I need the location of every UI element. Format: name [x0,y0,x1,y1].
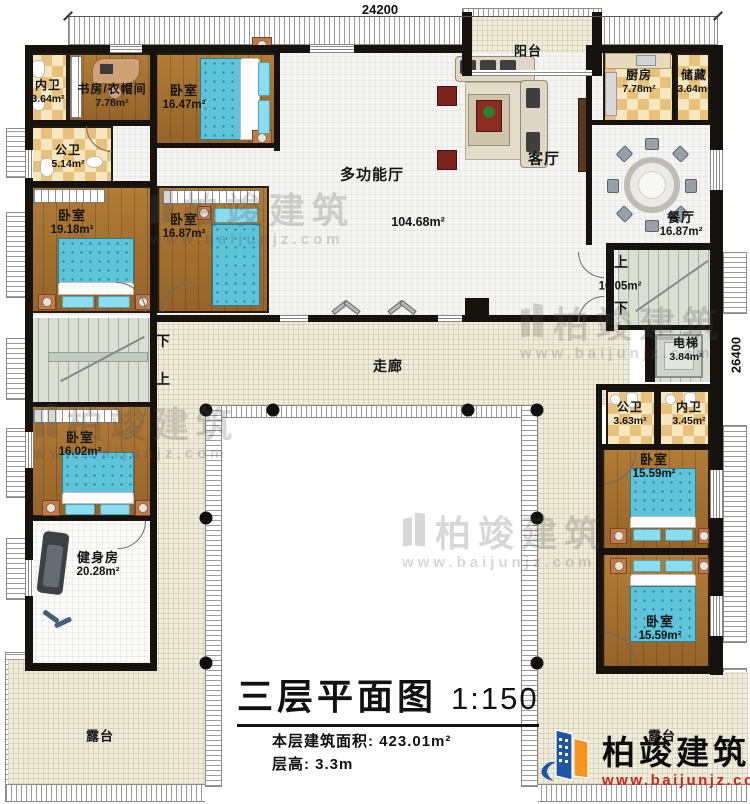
room-label-bedroom-1647: 卧室16.47m² [163,84,206,112]
room-label-bedroom-1918: 卧室19.18m² [51,209,94,237]
sofa-cushion [526,88,540,108]
roof-edge-left-2 [6,212,26,298]
bed-sheet [62,492,134,504]
wall-segment [655,390,660,446]
wall-segment [606,243,723,250]
nightstand [698,528,709,544]
double-door-icon [332,300,360,316]
title-scale: 1:150 [451,681,539,717]
wall-segment [592,45,723,53]
plant [483,106,495,118]
wall-segment [274,45,280,151]
wall-segment [672,53,676,121]
pillow [258,100,270,134]
room-label-gongwei-left: 公卫5.14m² [51,144,84,170]
column-dot [267,404,280,417]
roof-edge-left-3 [6,338,26,400]
logo-url-text: www.baijunjz.com [602,772,750,789]
side-table [437,86,457,106]
column-dot [531,404,544,417]
terrace-left-floor [8,660,207,784]
room-label-kitchen: 厨房7.78m² [622,69,655,95]
brand-logo: 柏竣建筑 www.baijunjz.com [536,722,750,789]
dimension-top: 24200 [362,2,398,17]
watermark: 柏竣建筑 www.baijunjz.com [34,396,239,462]
room-label-study: 书房/衣帽间7.78m² [77,83,146,109]
wall-segment [25,663,157,671]
watermark: 柏竣建筑 www.baijunjz.com [150,182,355,248]
wall-segment [592,12,602,76]
window [110,45,142,53]
nightstand [135,500,151,516]
column-dot [462,404,475,417]
room-label-gongwei-right: 公卫3.63m² [613,401,646,427]
window [25,432,33,468]
bed-sheet [630,516,696,528]
closet [33,189,105,203]
chair [607,179,619,193]
toilet [32,60,45,78]
dimension-right: 26400 [729,337,744,373]
window [710,470,723,518]
pillow [65,504,95,515]
drawing-title: 三层平面图 1:150 [237,668,539,727]
roof-edge-left-5 [6,538,26,600]
corridor-label: 走廊 [373,358,403,374]
column-dot [200,512,213,525]
wall-segment [586,120,723,125]
chair [645,138,659,150]
wall-segment [150,143,280,148]
kitchen-sink [636,55,656,66]
sofa-cushion [526,132,540,152]
courtyard-railing-left [205,405,222,787]
nightstand [38,294,56,310]
nightstand [610,558,627,574]
room-label-neiwei-top-left: 内卫3.64m² [31,79,64,105]
bed [200,58,242,140]
window [710,150,723,190]
logo-brand-text: 柏竣建筑 [602,736,750,769]
dining-table [624,157,680,213]
column-dot [200,657,213,670]
bed-sheet [240,58,260,140]
wall-segment [596,666,723,674]
roof-edge-right-2 [723,425,747,643]
watermark-building-icon [150,190,176,226]
room-label-neiwei-right: 内卫3.45m² [672,401,705,427]
nightstand [610,528,627,544]
room-label-balcony: 阳台 [514,45,542,60]
room-label-storage: 储藏3.64m² [677,69,710,95]
window [438,315,462,322]
wall-segment [25,45,472,53]
title-text: 三层平面图 [237,668,437,720]
wall-segment [602,444,723,450]
pillow [100,504,130,515]
watermark-building-icon [34,404,60,440]
stairs-left-up-label: 上 [156,369,170,389]
side-table [437,150,457,170]
wall-segment [25,516,155,520]
bed-sheet [630,574,696,586]
window [472,70,592,76]
nightstand [42,500,60,516]
stairs-right-area-label: 10.05m² [599,280,642,293]
room-label-hall-area: 104.68m² [391,215,445,229]
dimension-line-top [68,16,718,17]
logo-building-icon [536,722,594,789]
roof-edge-top [68,16,718,45]
floor-height-line: 层高: 3.3m [272,753,353,774]
pillow [258,62,270,96]
window [280,315,308,322]
pillow [665,560,693,572]
terrace-bottom-edge-left [5,784,227,802]
room-label-bedroom-1559a: 卧室15.59m² [633,453,676,481]
watermark: 柏竣建筑 www.baijunjz.com [520,296,725,362]
wall-segment [25,181,155,187]
roof-edge-right-1 [723,252,747,314]
room-label-terrace-left: 露台 [86,730,114,745]
pillow [665,529,693,541]
watermark-building-icon [402,513,428,549]
window [25,150,33,178]
chair [645,220,659,232]
kitchen-appliance [605,72,617,116]
wall-segment [602,548,723,555]
pillow [62,296,94,308]
room-label-gym: 健身房20.28m² [77,551,120,579]
floor-plan-drawing: 内卫3.64m² 书房/衣帽间7.78m² 卧室16.47m² 阳台 厨房7.7… [0,0,750,804]
wall-segment [462,12,472,76]
roof-edge-left-1 [6,128,26,178]
pillow [633,560,661,572]
bed [58,238,134,284]
roof-edge-left-4 [6,428,26,498]
watermark-building-icon [520,304,546,340]
double-door-icon [388,300,416,316]
window [710,596,723,636]
wall-segment [602,384,723,390]
courtyard-railing-top [205,405,538,418]
chair [685,179,697,193]
window [310,45,354,53]
window [25,560,33,596]
sink [86,156,103,168]
watermark: 柏竣建筑 www.baijunjz.com [402,505,607,571]
nightstand [698,558,709,574]
floor-area-line: 本层建筑面积: 423.01m² [272,730,451,751]
monitor [100,64,113,74]
stairs-right-up-label: 上 [614,252,628,272]
stairs-left-down-label: 下 [156,331,170,351]
room-label-dining: 餐厅16.87m² [660,211,703,239]
wall-segment [465,298,489,322]
room-label-living: 客厅 [528,150,560,167]
pillow [633,529,661,541]
room-label-bedroom-1559b: 卧室15.59m² [639,615,682,643]
